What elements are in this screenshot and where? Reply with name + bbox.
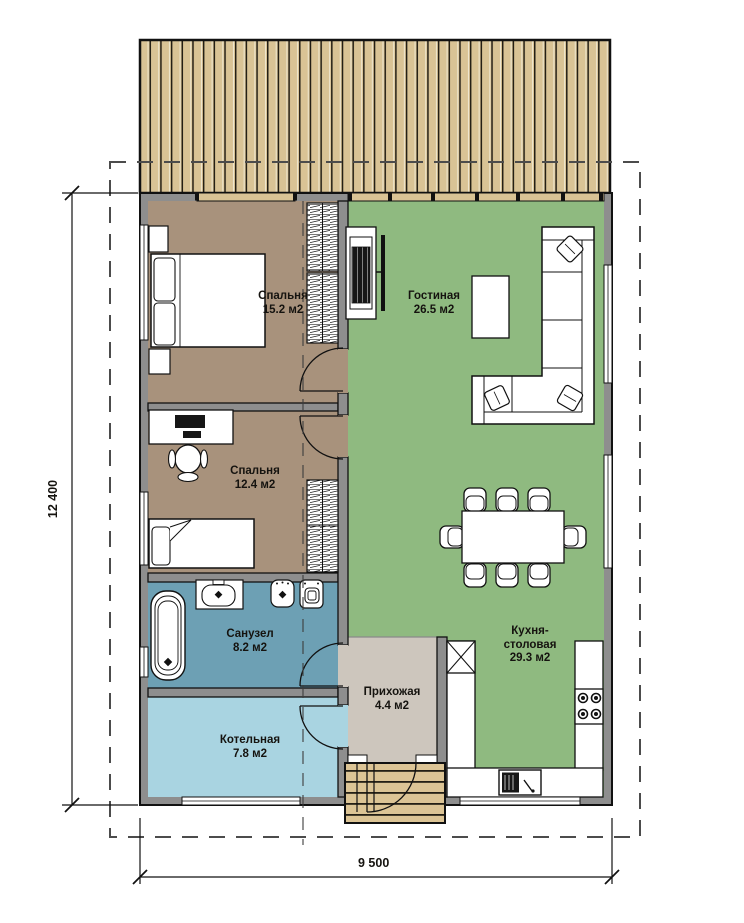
stove-icon: [575, 689, 603, 724]
boiler-label: Котельная 7.8 м2: [220, 734, 280, 761]
window-icon: [195, 193, 297, 201]
entry-stairs: [345, 763, 445, 823]
deck-terrace: [140, 40, 610, 193]
sink-vanity-icon: [196, 580, 243, 609]
living-label: Гостиная 26.5 м2: [408, 290, 460, 317]
kitchen-tall-cabinet-icon: [447, 641, 475, 770]
single-bed-icon: [149, 519, 254, 568]
fireplace-icon: [346, 227, 376, 319]
window-icon: [604, 265, 612, 383]
vertical-dimension-label: 12 400: [46, 480, 60, 518]
desk-icon: [149, 410, 233, 444]
window-icon: [140, 647, 148, 677]
bedroom-1-label: Спальня 15.2 м2: [258, 290, 308, 317]
window-icon: [460, 797, 580, 805]
glass-wall-icon: [348, 193, 604, 201]
double-bed-icon: [151, 254, 265, 347]
kitchen-label: Кухня- столовая 29.3 м2: [504, 625, 557, 666]
kitchen-sink-icon: [499, 770, 541, 795]
window-icon: [140, 492, 148, 565]
bedroom-2-label: Спальня 12.4 м2: [230, 465, 280, 492]
coffee-table-icon: [472, 276, 509, 338]
horizontal-dimension-label: 9 500: [358, 856, 389, 870]
floor-plan-canvas: Спальня 15.2 м2 Спальня 12.4 м2 Санузел …: [0, 0, 744, 923]
wardrobe-icon: [307, 203, 338, 343]
window-icon: [182, 797, 300, 805]
hallway-label: Прихожая 4.4 м2: [364, 686, 421, 713]
floor-plan-drawing: [0, 0, 744, 923]
bathroom-label: Санузел 8.2 м2: [226, 628, 273, 655]
window-icon: [140, 225, 148, 340]
bidet-icon: [271, 580, 294, 607]
wardrobe-icon: [307, 480, 338, 572]
window-icon: [604, 455, 612, 568]
bathtub-icon: [151, 591, 185, 680]
